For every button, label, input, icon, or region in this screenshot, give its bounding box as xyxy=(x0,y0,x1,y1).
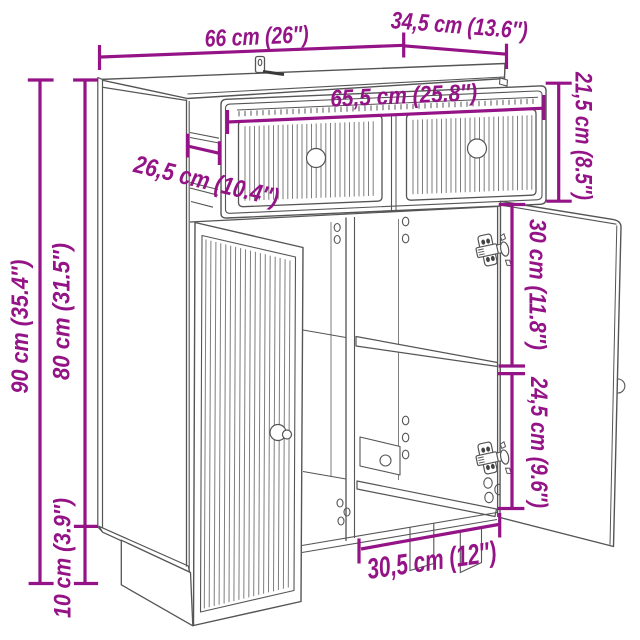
svg-text:80 cm (31.5″): 80 cm (31.5″) xyxy=(49,243,76,380)
svg-text:21,5 cm (8.5″): 21,5 cm (8.5″) xyxy=(570,71,597,200)
svg-text:66 cm (26″): 66 cm (26″) xyxy=(204,21,309,53)
svg-text:10 cm (3.9″): 10 cm (3.9″) xyxy=(50,498,77,618)
svg-text:30 cm (11.8″): 30 cm (11.8″) xyxy=(524,219,551,350)
svg-text:90 cm (35.4″): 90 cm (35.4″) xyxy=(7,260,34,394)
svg-text:24,5 cm (9.6″): 24,5 cm (9.6″) xyxy=(525,376,552,508)
